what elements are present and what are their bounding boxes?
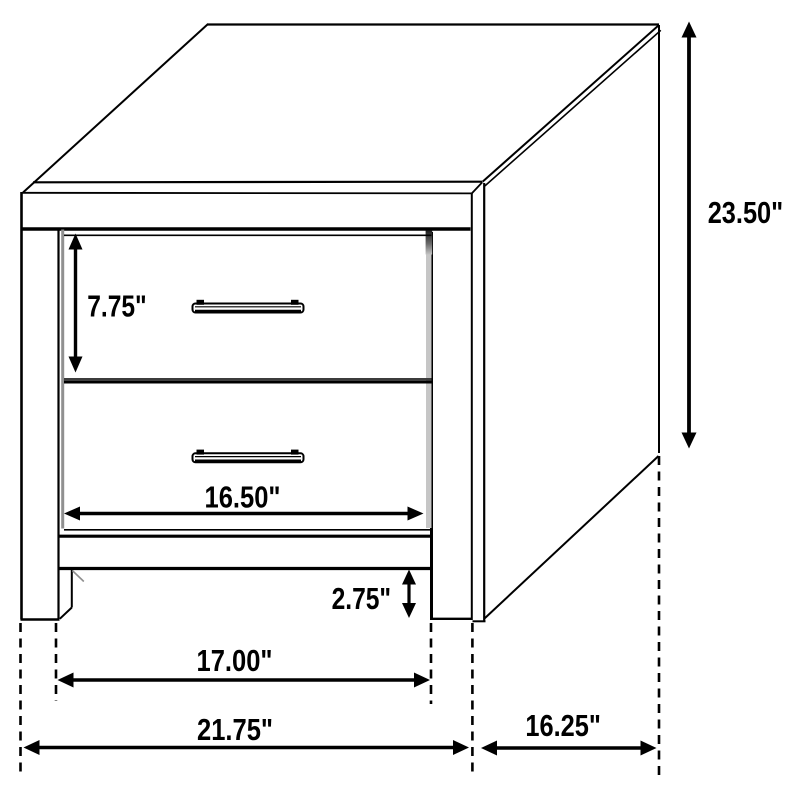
svg-text:21.75": 21.75" bbox=[197, 713, 273, 747]
svg-text:16.25": 16.25" bbox=[525, 709, 601, 743]
svg-text:17.00": 17.00" bbox=[197, 644, 273, 678]
svg-text:7.75": 7.75" bbox=[87, 290, 147, 324]
svg-text:16.50": 16.50" bbox=[205, 481, 281, 515]
svg-text:2.75": 2.75" bbox=[332, 582, 392, 616]
svg-text:23.50": 23.50" bbox=[708, 196, 784, 230]
